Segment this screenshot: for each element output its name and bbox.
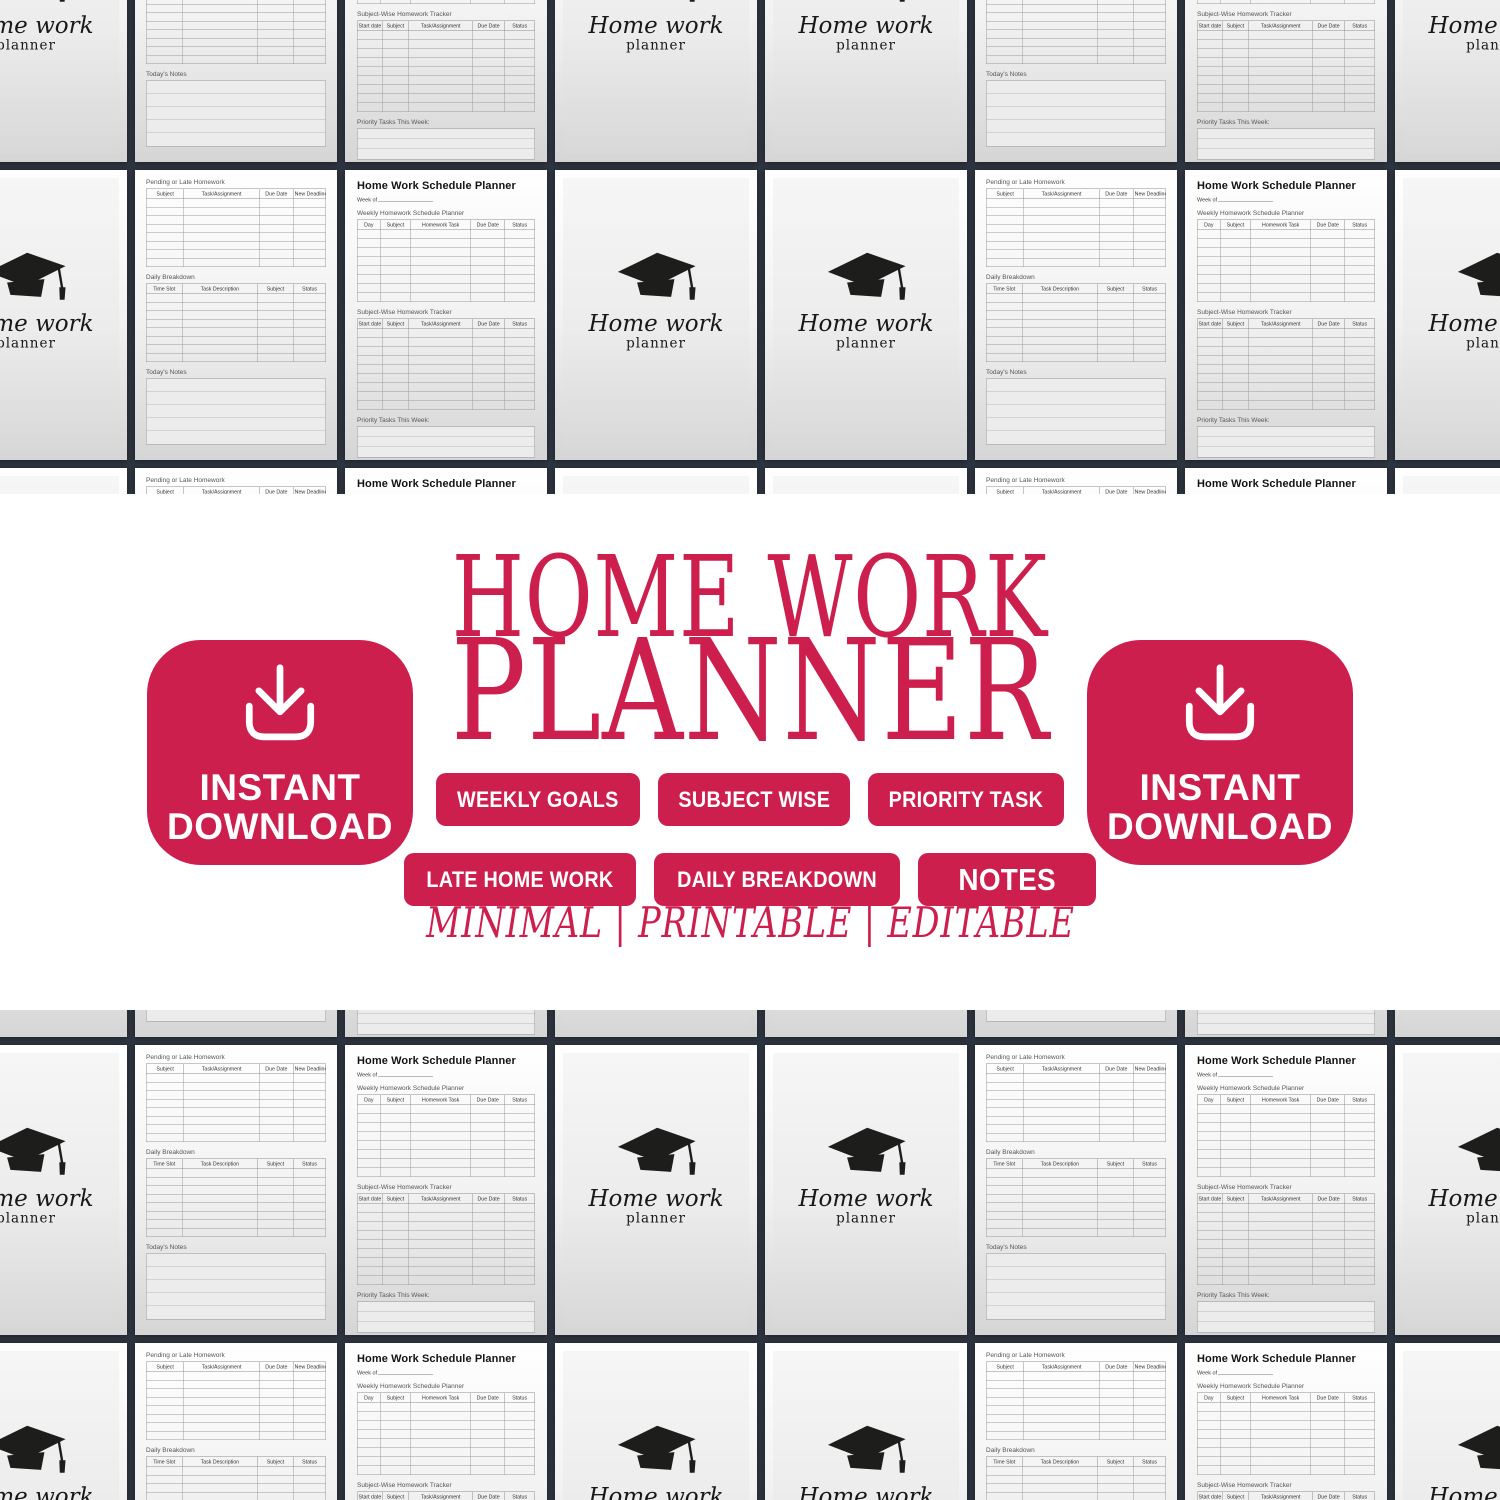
empty-cell [1345,347,1375,356]
empty-cell [1098,13,1134,22]
column-header: Task Description [182,1159,257,1169]
empty-cell [1345,1231,1375,1240]
empty-cell [1311,1466,1345,1475]
feature-pills-row-1: WEEKLY GOALSSUBJECT WISEPRIORITY TASK [0,773,1500,826]
empty-cell [1345,239,1375,248]
empty-cell [258,4,294,13]
notes-line [1198,427,1375,437]
daily-page-inner: Pending or Late HomeworkSubjectTask/Assi… [975,170,1177,460]
empty-cell [1220,1412,1250,1421]
empty-cell [1250,1466,1310,1475]
empty-cell [357,1249,382,1258]
weekly-schedule-table: DaySubjectHomework TaskDue DateStatus [1197,1095,1375,1178]
empty-cell [146,1406,184,1415]
empty-cell [1197,365,1222,374]
empty-cell [146,1414,184,1423]
empty-cell [1313,1249,1345,1258]
section-label: Weekly Homework Schedule Planner [357,1382,535,1390]
empty-cell [1222,76,1249,85]
empty-cell [986,1423,1024,1432]
column-header: Subject [146,1064,184,1074]
column-header: Task Description [182,284,257,294]
planner-page-cover: Home workplanner [0,170,127,460]
empty-cell [505,329,535,338]
column-header: Due Date [1099,487,1133,494]
daily-breakdown-table: Time SlotTask DescriptionSubjectStatus [986,284,1166,363]
column-header: Start date [357,1492,382,1500]
empty-cell [471,1421,505,1430]
empty-cell [1249,1231,1313,1240]
empty-cell [1313,76,1345,85]
empty-cell [1311,1105,1345,1114]
planner-collage-bottom: Home workplannerPending or Late Homework… [0,1010,1500,1500]
notes-line [147,1306,326,1319]
empty-cell [182,55,257,64]
empty-cell [471,284,505,293]
empty-cell [1345,275,1375,284]
empty-cell [1098,1228,1134,1237]
week-of-line: Week of [1197,1370,1375,1376]
section-label: Priority Tasks This Week: [357,118,535,126]
empty-cell [1220,1430,1250,1439]
empty-cell [1250,0,1310,4]
empty-cell [1250,1412,1310,1421]
empty-cell [1022,1228,1097,1237]
column-header: Time Slot [146,284,182,294]
empty-cell [1098,1467,1134,1476]
cover-panel: Home workplanner [563,0,749,154]
empty-cell [258,30,294,39]
section-label: Priority Tasks This Week: [357,1291,535,1299]
empty-cell [1133,1406,1165,1415]
column-header: Time Slot [986,1457,1022,1467]
cover-panel: Home workplanner [1403,476,1500,494]
cover-title: Home work [0,1187,94,1210]
cover-page-inner: Home workplanner [765,1045,967,1335]
empty-cell [409,1204,473,1213]
empty-cell [293,1186,325,1195]
cover-subtitle: planner [836,39,896,53]
empty-cell [1220,0,1250,4]
empty-cell [1197,1213,1222,1222]
empty-cell [259,1380,293,1389]
empty-cell [146,233,184,242]
empty-cell [1197,293,1220,302]
empty-cell [986,4,1022,13]
empty-cell [1197,103,1222,112]
empty-cell [146,1194,182,1203]
graduation-cap-icon [822,0,910,7]
empty-cell [293,311,325,320]
empty-cell [1249,347,1313,356]
empty-cell [182,1228,257,1237]
notes-line [1198,139,1375,149]
empty-cell [146,216,184,225]
empty-cell [473,356,505,365]
pending-late-homework-table: SubjectTask/AssignmentDue DateNew Deadli… [986,1064,1166,1143]
notes-line [987,1254,1166,1267]
empty-cell [1099,216,1133,225]
notes-line [147,1293,326,1306]
empty-cell [1345,1466,1375,1475]
empty-cell [1024,1099,1099,1108]
empty-cell [1345,0,1375,4]
empty-cell [293,1467,325,1476]
column-header: Task/Assignment [409,21,473,31]
subject-wise-tracker-table: Start dateSubjectTask/AssignmentDue Date… [357,21,535,113]
empty-cell [410,266,470,275]
empty-cell [1022,1177,1097,1186]
empty-cell [259,1099,293,1108]
empty-cell [382,365,409,374]
empty-cell [1133,1484,1165,1493]
empty-cell [1250,1105,1310,1114]
empty-cell [1249,58,1313,67]
empty-cell [1222,58,1249,67]
empty-cell [1313,347,1345,356]
empty-cell [1313,1213,1345,1222]
schedule-page-inner: Home Work Schedule PlannerWeek ofWeekly … [345,1010,547,1037]
empty-cell [182,319,257,328]
empty-cell [182,1186,257,1195]
planner-page-schedule: Home Work Schedule PlannerWeek ofWeekly … [345,1045,547,1335]
empty-cell [293,1203,325,1212]
empty-cell [1313,58,1345,67]
empty-cell [1098,1177,1134,1186]
empty-cell [986,1372,1024,1381]
notes-line [987,1267,1166,1280]
section-label: Daily Breakdown [146,1446,326,1454]
empty-cell [505,1141,535,1150]
column-header: New Deadline [1133,1064,1165,1074]
empty-cell [1313,31,1345,40]
cover-subtitle: planner [0,337,56,351]
empty-cell [1250,1421,1310,1430]
empty-cell [293,13,325,22]
empty-cell [380,230,410,239]
empty-cell [1197,356,1222,365]
empty-cell [1249,329,1313,338]
empty-cell [357,1466,380,1475]
empty-cell [1345,392,1375,401]
empty-cell [1024,216,1099,225]
empty-cell [1345,1204,1375,1213]
empty-cell [986,1108,1024,1117]
planner-page-cover: Home workplanner [0,468,127,494]
empty-cell [986,38,1022,47]
planner-page-cover: Home workplanner [765,1010,967,1037]
daily-page-inner: Pending or Late HomeworkSubjectTask/Assi… [135,170,337,460]
empty-cell [505,85,535,94]
empty-cell [471,266,505,275]
empty-cell [1311,1114,1345,1123]
graduation-cap-icon [612,247,700,305]
empty-cell [471,0,505,4]
cover-page-inner: Home workplanner [555,468,757,494]
empty-cell [410,1159,470,1168]
cover-panel: Home workplanner [1403,178,1500,452]
column-header: Task/Assignment [1249,319,1313,329]
cover-subtitle: planner [1466,337,1500,351]
empty-cell [505,1105,535,1114]
empty-cell [1197,94,1222,103]
priority-tasks-box [1197,129,1375,160]
empty-cell [1022,47,1097,56]
empty-cell [473,94,505,103]
empty-cell [184,1099,259,1108]
empty-cell [1197,1240,1222,1249]
empty-cell [1250,1114,1310,1123]
empty-cell [505,1231,535,1240]
empty-cell [259,224,293,233]
cover-page-inner: Home workplanner [0,1045,127,1335]
empty-cell [1197,1114,1220,1123]
empty-cell [1220,1132,1250,1141]
column-header: Due Date [471,220,505,230]
empty-cell [259,233,293,242]
empty-cell [505,94,535,103]
empty-cell [1249,1276,1313,1285]
section-label: Daily Breakdown [986,1446,1166,1454]
empty-cell [1250,1430,1310,1439]
empty-cell [1250,266,1310,275]
empty-cell [1250,293,1310,302]
column-header: Status [293,1159,325,1169]
empty-cell [1345,1123,1375,1132]
column-header: Status [1345,220,1375,230]
weekly-schedule-table: DaySubjectHomework TaskDue DateStatus [357,220,535,303]
column-header: Subject [382,21,409,31]
empty-cell [184,1389,259,1398]
cover-subtitle: planner [626,1212,686,1226]
empty-cell [258,47,294,56]
empty-cell [357,67,382,76]
empty-cell [410,230,470,239]
empty-cell [1133,4,1165,13]
empty-cell [1022,319,1097,328]
column-header: Subject [1222,1194,1249,1204]
empty-cell [1313,356,1345,365]
empty-cell [1024,199,1099,208]
todays-notes-box [986,1254,1166,1320]
week-of-blank-line [1218,201,1273,202]
empty-cell [1098,1169,1134,1178]
empty-cell [986,1091,1024,1100]
planner-page-daily: Pending or Late HomeworkSubjectTask/Assi… [975,1343,1177,1500]
empty-cell [1345,1457,1375,1466]
empty-cell [1311,230,1345,239]
empty-cell [1133,353,1165,362]
empty-cell [357,1213,382,1222]
feature-pill-label: SUBJECT WISE [678,787,830,813]
planner-page-cover: Home workplanner [555,1010,757,1037]
empty-cell [1133,1475,1165,1484]
empty-cell [1222,1258,1249,1267]
column-header: Task/Assignment [1024,1064,1099,1074]
empty-cell [184,1082,259,1091]
empty-cell [382,1240,409,1249]
empty-cell [1250,1159,1310,1168]
cover-title: Home work [1428,1187,1500,1210]
daily-page-inner: Pending or Late HomeworkSubjectTask/Assi… [135,1045,337,1335]
empty-cell [1345,103,1375,112]
empty-cell [146,38,182,47]
empty-cell [184,233,259,242]
planner-page-cover: Home workplanner [555,468,757,494]
empty-cell [380,275,410,284]
empty-cell [1249,356,1313,365]
empty-cell [1250,1132,1310,1141]
empty-cell [1313,1267,1345,1276]
empty-cell [382,356,409,365]
cover-title: Home work [588,1187,723,1210]
empty-cell [505,356,535,365]
empty-cell [146,1099,184,1108]
notes-line [358,1014,535,1024]
todays-notes-box [146,379,326,445]
section-label: Priority Tasks This Week: [357,416,535,424]
empty-cell [382,329,409,338]
empty-cell [471,1114,505,1123]
planner-page-cover: Home workplanner [1395,1045,1500,1335]
empty-cell [1345,1249,1375,1258]
empty-cell [146,30,182,39]
weekly-schedule-table: DaySubjectHomework TaskDue DateStatus [1197,220,1375,303]
empty-cell [1098,319,1134,328]
week-of-label: Week of [357,197,377,203]
empty-cell [1313,85,1345,94]
empty-cell [258,21,294,30]
section-label: Today's Notes [986,70,1166,78]
empty-cell [259,258,293,267]
cover-page-inner: Home workplanner [765,170,967,460]
column-header: Status [1345,1095,1375,1105]
cover-page-inner: Home workplanner [555,170,757,460]
empty-cell [1022,4,1097,13]
empty-cell [357,392,382,401]
subject-wise-tracker-table: Start dateSubjectTask/AssignmentDue Date… [357,1194,535,1286]
empty-cell [380,1132,410,1141]
empty-cell [505,1222,535,1231]
empty-cell [184,224,259,233]
empty-cell [1250,1168,1310,1177]
empty-cell [1022,55,1097,64]
empty-cell [1197,266,1220,275]
empty-cell [505,103,535,112]
empty-cell [505,1267,535,1276]
empty-cell [1022,353,1097,362]
column-header: Homework Task [1250,1393,1310,1403]
empty-cell [293,1372,325,1381]
cover-page-inner: Home workplanner [555,1010,757,1037]
planner-page-schedule: Home Work Schedule PlannerWeek ofWeekly … [1185,0,1387,162]
empty-cell [986,241,1024,250]
empty-cell [357,401,382,410]
todays-notes-box [986,379,1166,445]
empty-cell [1222,1267,1249,1276]
column-header: Day [1197,1095,1220,1105]
empty-cell [1022,336,1097,345]
empty-cell [259,1431,293,1440]
empty-cell [184,1116,259,1125]
empty-cell [1024,233,1099,242]
empty-cell [1197,1222,1222,1231]
graduation-cap-icon [612,1122,700,1180]
empty-cell [409,347,473,356]
column-header: Homework Task [410,220,470,230]
notes-line [987,94,1166,107]
empty-cell [1345,1276,1375,1285]
feature-pill: PRIORITY TASK [868,773,1064,826]
planner-page-schedule: Home Work Schedule PlannerWeek ofWeekly … [1185,1343,1387,1500]
column-header: Subject [1220,1095,1250,1105]
empty-cell [1024,241,1099,250]
empty-cell [1313,338,1345,347]
cover-title: Home work [1428,14,1500,37]
planner-page-cover: Home workplanner [765,1045,967,1335]
empty-cell [146,1074,184,1083]
empty-cell [258,311,294,320]
daily-breakdown-table: Time SlotTask DescriptionSubjectStatus [986,1457,1166,1500]
empty-cell [1222,31,1249,40]
section-label: Subject-Wise Homework Tracker [1197,308,1375,316]
notes-line [1198,1014,1375,1024]
column-header: Day [357,1095,380,1105]
section-label: Daily Breakdown [986,1148,1166,1156]
cover-panel: Home workplanner [773,1351,959,1500]
empty-cell [1133,1372,1165,1381]
empty-cell [986,1389,1024,1398]
empty-cell [1098,294,1134,303]
empty-cell [505,1430,535,1439]
empty-cell [986,319,1022,328]
column-header: Subject [146,487,184,494]
notes-line [147,94,326,107]
empty-cell [1197,374,1222,383]
empty-cell [505,31,535,40]
column-header: Start date [1197,319,1222,329]
empty-cell [1197,76,1222,85]
pending-late-homework-table: SubjectTask/AssignmentDue DateNew Deadli… [986,189,1166,268]
empty-cell [146,47,182,56]
empty-cell [182,1484,257,1493]
empty-cell [146,1372,184,1381]
empty-cell [473,1222,505,1231]
empty-cell [1024,1414,1099,1423]
empty-cell [1133,38,1165,47]
priority-tasks-box [357,1302,535,1333]
planner-page-daily: Pending or Late HomeworkSubjectTask/Assi… [135,0,337,162]
column-header: Status [505,1393,535,1403]
empty-cell [410,239,470,248]
empty-cell [293,1414,325,1423]
column-header: Day [1197,1393,1220,1403]
graduation-cap-icon [1452,1122,1500,1180]
empty-cell [1345,1439,1375,1448]
empty-cell [146,311,182,320]
empty-cell [1099,1108,1133,1117]
empty-cell [293,294,325,303]
empty-cell [1249,76,1313,85]
cover-panel: Home workplanner [0,1053,119,1327]
empty-cell [986,258,1024,267]
empty-cell [505,1457,535,1466]
empty-cell [409,1231,473,1240]
empty-cell [184,1406,259,1415]
empty-cell [382,85,409,94]
subject-wise-tracker-table: Start dateSubjectTask/AssignmentDue Date… [1197,319,1375,411]
empty-cell [1220,1168,1250,1177]
